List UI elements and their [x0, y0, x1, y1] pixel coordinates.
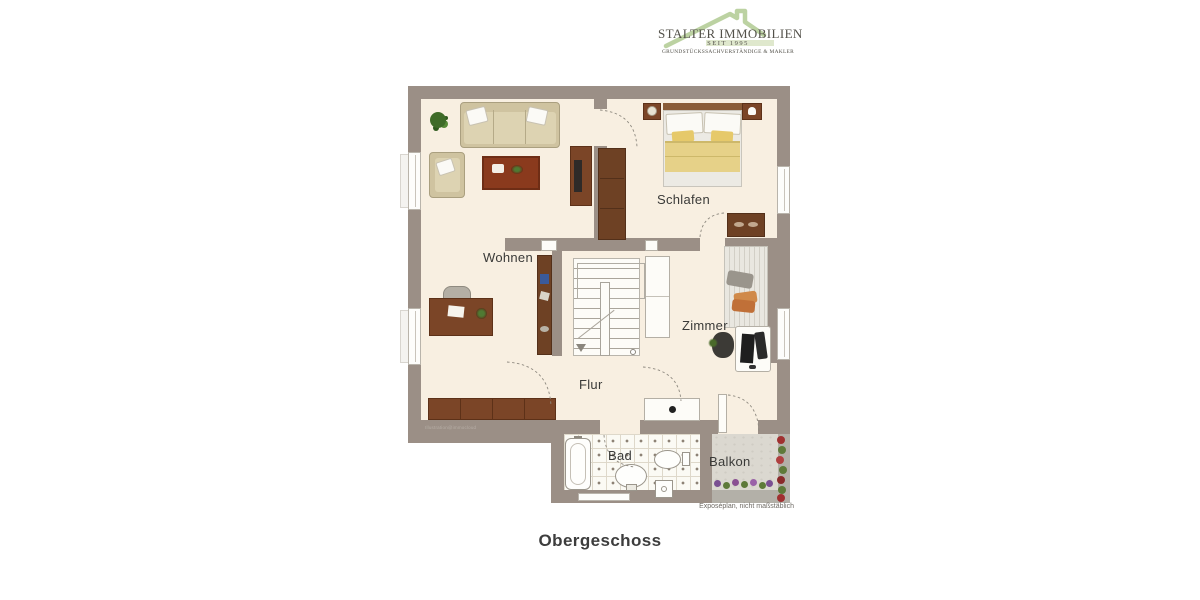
- company-logo: STALTER IMMOBILIEN SEIT 1995 GRUNDSTÜCKS…: [658, 5, 808, 57]
- faucet-icon: [574, 436, 582, 438]
- plant-icon: [430, 112, 446, 128]
- mouse: [749, 365, 756, 369]
- page-title: Obergeschoss: [0, 531, 1200, 551]
- table-plant-icon: [511, 165, 523, 174]
- watermark-text: Illustration@immocloud: [425, 425, 476, 430]
- wall-flur-bottom-3: [758, 420, 790, 434]
- wall-opening-marker: [541, 240, 557, 251]
- table-tray: [492, 164, 504, 173]
- wall-opening-marker: [645, 240, 658, 251]
- lamp-icon: [647, 106, 657, 116]
- wall-right: [777, 86, 790, 433]
- sideboard-seam: [524, 399, 525, 419]
- wardrobe-shelf: [600, 208, 624, 209]
- balkon-door-leaf: [718, 394, 727, 433]
- room-label-schlafen: Schlafen: [657, 192, 710, 207]
- laptop: [740, 334, 755, 364]
- flower-box-icon: [714, 480, 721, 487]
- wall-flur-bottom-2: [640, 420, 718, 434]
- bookshelf-books: [540, 274, 549, 284]
- wall-flur-bottom-1: [560, 420, 600, 434]
- wall-stair-left: [552, 251, 562, 356]
- daybed-cushion-orange: [731, 299, 755, 313]
- room-label-flur: Flur: [579, 377, 603, 392]
- coffee-table: [482, 156, 540, 190]
- logo-tagline: GRUNDSTÜCKSSACHVERSTÄNDIGE & MAKLER: [658, 49, 798, 55]
- wall-bad-bottom: [551, 490, 712, 503]
- wall-top: [408, 86, 790, 99]
- bookshelf-bowl: [540, 326, 549, 332]
- toilet: [654, 450, 681, 469]
- hall-wardrobe-seam: [646, 296, 669, 297]
- bad-window: [578, 493, 630, 501]
- window-left-1: [408, 152, 421, 210]
- flower-column-icon: [777, 436, 785, 444]
- logo-since: SEIT 1995: [658, 40, 798, 47]
- hall-wardrobe: [645, 256, 670, 338]
- floorplan-page: STALTER IMMOBILIEN SEIT 1995 GRUNDSTÜCKS…: [0, 0, 1200, 600]
- dresser-handle: [734, 222, 744, 227]
- stair-post: [630, 349, 636, 355]
- stair-railing: [577, 263, 645, 299]
- desk-plant-icon: [476, 308, 487, 319]
- sink-pedestal: [626, 484, 637, 491]
- room-label-wohnen: Wohnen: [483, 250, 533, 265]
- tv: [574, 160, 582, 192]
- bookshelf: [537, 255, 552, 355]
- floorplan: Wohnen Schlafen Zimmer Flur Bad Balkon I…: [408, 86, 792, 504]
- window-left-2: [408, 308, 421, 365]
- shower-drain: [661, 486, 667, 492]
- room-label-balkon: Balkon: [709, 454, 751, 469]
- sideboard-seam: [492, 399, 493, 419]
- dresser-handle: [748, 222, 758, 227]
- plan-caption: Exposéplan, nicht maßstäblich: [690, 503, 794, 510]
- wardrobe-shelf: [600, 178, 624, 179]
- toilet-tank: [682, 452, 690, 466]
- stair-down-arrow: [576, 344, 586, 352]
- dresser: [727, 213, 765, 237]
- room-label-bad: Bad: [608, 448, 632, 463]
- nightstand-decor: [748, 107, 756, 115]
- wardrobe: [598, 148, 626, 240]
- wall-bottom-left: [408, 420, 560, 443]
- chair-plant-icon: [708, 338, 718, 348]
- cabinet-knob: [669, 406, 676, 413]
- bed-headboard: [663, 103, 742, 110]
- room-label-zimmer: Zimmer: [682, 318, 728, 333]
- blanket-fold: [665, 156, 740, 157]
- sideboard-seam: [460, 399, 461, 419]
- wall-partition-stub: [594, 99, 607, 109]
- sofa-seam: [493, 110, 494, 144]
- wall-left: [408, 86, 421, 443]
- desk-paper: [447, 305, 464, 318]
- bathtub-inner: [570, 443, 586, 485]
- window-right-2: [777, 308, 790, 360]
- window-right-1: [777, 166, 790, 214]
